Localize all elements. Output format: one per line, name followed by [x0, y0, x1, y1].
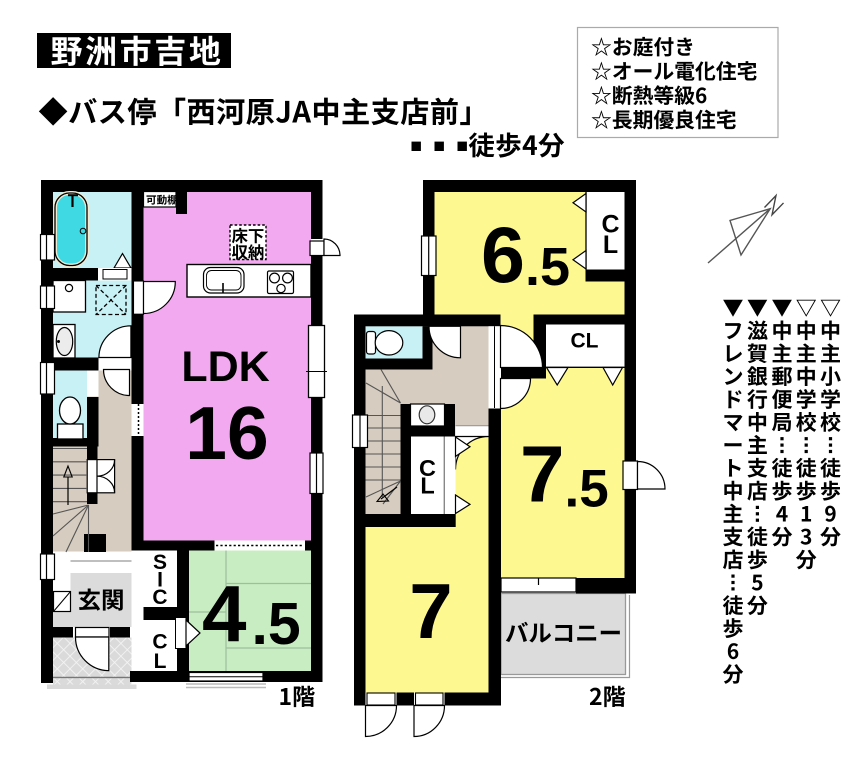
- svg-text:L: L: [420, 473, 434, 499]
- svg-text:CL: CL: [571, 330, 599, 353]
- svg-text:L: L: [154, 650, 167, 673]
- svg-text:16: 16: [185, 391, 268, 475]
- svg-text:7: 7: [409, 567, 452, 655]
- svg-text:L: L: [603, 231, 618, 259]
- svg-text:LDK: LDK: [181, 343, 269, 391]
- svg-text:C: C: [152, 586, 167, 609]
